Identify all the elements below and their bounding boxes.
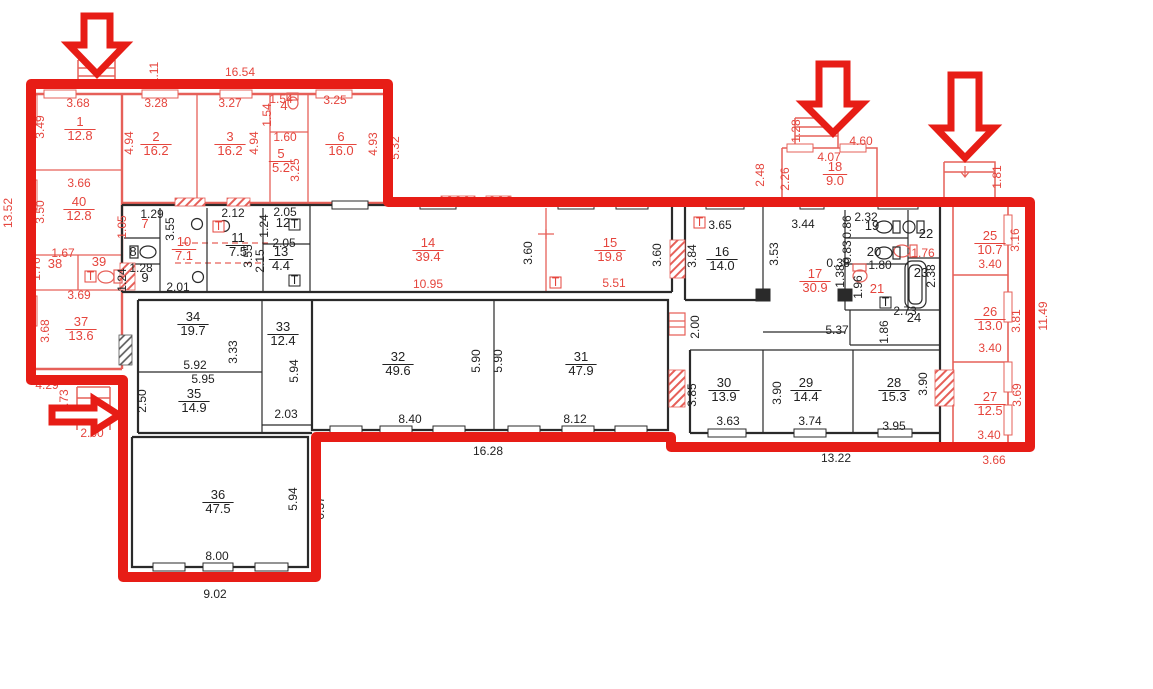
room-area: 10.7 <box>977 242 1002 257</box>
dimension-label: 13.22 <box>821 451 851 465</box>
dimension-label: 1.86 <box>877 320 891 344</box>
room-number: 7 <box>141 216 148 231</box>
dimension-label: 3.40 <box>978 341 1002 355</box>
room-number: 25 <box>983 228 997 243</box>
dimension-label: 16.28 <box>473 444 503 458</box>
room-number: 24 <box>907 310 921 325</box>
dimension-label: 3.25 <box>323 93 347 107</box>
room-number: 17 <box>808 266 822 281</box>
dimension-label: 5.92 <box>183 358 207 372</box>
room-number: 36 <box>211 487 225 502</box>
room-area: 12.8 <box>67 128 92 143</box>
room-area: 47.5 <box>205 501 230 516</box>
room-number: 35 <box>187 386 201 401</box>
room-area: 13.0 <box>977 318 1002 333</box>
room-area: 16.2 <box>217 143 242 158</box>
room-number: 1 <box>76 114 83 129</box>
dimension-label: 10.95 <box>413 277 443 291</box>
dimension-label: 3.74 <box>798 414 822 428</box>
room-area: 5.2 <box>272 160 290 175</box>
dimension-label: 3.68 <box>38 319 52 343</box>
dimension-label: 13.52 <box>1 198 15 228</box>
room-number: 33 <box>276 319 290 334</box>
room-area: 15.3 <box>881 389 906 404</box>
dimension-label: 3.66 <box>982 453 1006 467</box>
room-number: 21 <box>870 281 884 296</box>
room-number: 9 <box>141 270 148 285</box>
dimension-label: 5.94 <box>287 359 301 383</box>
dimension-label: 8.40 <box>398 412 422 426</box>
dimension-label: 3.33 <box>226 340 240 364</box>
room-area: 16.0 <box>328 143 353 158</box>
dimension-label: 8.00 <box>205 549 229 563</box>
dimension-label: 5.37 <box>825 323 849 337</box>
dimension-label: 5.95 <box>191 372 215 386</box>
dimension-label: 1.80 <box>868 258 892 272</box>
room-area: 14.9 <box>181 400 206 415</box>
room-area: 39.4 <box>415 249 440 264</box>
dimension-label: 5.51 <box>602 276 626 290</box>
room-number: 5 <box>277 146 284 161</box>
dimension-label: 3.53 <box>767 242 781 266</box>
room-number: 32 <box>391 349 405 364</box>
dimension-label: 2.03 <box>274 407 298 421</box>
utility-t-glyph: T <box>552 275 560 289</box>
room-number: 19 <box>865 218 879 233</box>
room-number: 6 <box>337 129 344 144</box>
dimension-label: 3.90 <box>916 372 930 396</box>
room-area: 16.2 <box>143 143 168 158</box>
dimension-label: 1.81 <box>990 165 1004 189</box>
room-number: 4 <box>280 98 287 113</box>
room-number: 38 <box>48 256 62 271</box>
room-area: 14.4 <box>793 389 818 404</box>
room-number: 20 <box>867 244 881 259</box>
room-number: 14 <box>421 235 435 250</box>
room-number: 13 <box>274 244 288 259</box>
dimension-label: 5.94 <box>286 487 300 511</box>
room-number: 16 <box>715 244 729 259</box>
room-number: 29 <box>799 375 813 390</box>
dimension-label: 2.50 <box>135 389 149 413</box>
room-number: 12 <box>276 215 290 230</box>
floor-plan-drawing: 16.541.1113.523.683.493.284.943.274.941.… <box>0 0 1153 689</box>
dimension-label: 3.60 <box>650 243 664 267</box>
dimension-label: 1.05 <box>115 215 129 239</box>
dimension-label: 1.28 <box>789 119 803 143</box>
utility-t-glyph: T <box>291 273 299 287</box>
dimension-label: 2.01 <box>166 280 190 294</box>
room-number: 23 <box>914 265 928 280</box>
dimension-label: 1.24 <box>115 268 129 292</box>
dimension-label: 1.60 <box>273 130 297 144</box>
room-number: 8 <box>129 244 136 259</box>
utility-t-glyph: T <box>87 269 95 283</box>
room-area: 30.9 <box>802 280 827 295</box>
dimension-label: 16.54 <box>225 65 255 79</box>
room-number: 27 <box>983 389 997 404</box>
room-area: 7.1 <box>175 248 193 263</box>
dimension-label: 3.66 <box>67 176 91 190</box>
dimension-label: 11.49 <box>1036 301 1050 330</box>
room-area: 9.0 <box>826 173 844 188</box>
room-area: 49.6 <box>385 363 410 378</box>
dimension-label: 9.02 <box>203 587 227 601</box>
dimension-label: 3.27 <box>218 96 242 110</box>
wall-post <box>838 289 852 301</box>
room-number: 22 <box>919 226 933 241</box>
room-number: 10 <box>177 234 191 249</box>
dimension-label: 3.60 <box>521 241 535 265</box>
dimension-label: 1.38 <box>833 264 847 288</box>
room-number: 26 <box>983 304 997 319</box>
room-number: 3 <box>226 129 233 144</box>
room-area: 47.9 <box>568 363 593 378</box>
room-number: 11 <box>231 230 245 245</box>
dimension-label: 4.60 <box>849 134 873 148</box>
dimension-label: 8.12 <box>563 412 587 426</box>
dimension-label: 3.63 <box>716 414 740 428</box>
room-area: 12.8 <box>66 208 91 223</box>
room-number: 15 <box>603 235 617 250</box>
utility-t-glyph: T <box>291 217 299 231</box>
room-area: 12.4 <box>270 333 295 348</box>
utility-t-glyph: T <box>882 295 890 309</box>
dimension-label: 4.94 <box>247 131 261 155</box>
dimension-label: 3.40 <box>978 257 1002 271</box>
dimension-label: 3.84 <box>685 244 699 268</box>
dimension-label: 1.76 <box>911 246 935 260</box>
dimension-label: 1.54 <box>260 103 274 127</box>
room-area: 12.5 <box>977 403 1002 418</box>
room-area: 19.7 <box>180 323 205 338</box>
room-number: 28 <box>887 375 901 390</box>
room-area: 14.0 <box>709 258 734 273</box>
dimension-label: 3.69 <box>1010 383 1024 407</box>
room-area: 19.8 <box>597 249 622 264</box>
floor-plan-page: 16.541.1113.523.683.493.284.943.274.941.… <box>0 0 1153 689</box>
dimension-label: 3.68 <box>66 96 90 110</box>
room-number: 18 <box>828 159 842 174</box>
dimension-label: 4.93 <box>366 132 380 156</box>
room-number: 2 <box>152 129 159 144</box>
dimension-label: 2.00 <box>688 315 702 339</box>
dimension-label: 3.90 <box>770 381 784 405</box>
room-area: 13.6 <box>68 328 93 343</box>
dimension-label: 2.26 <box>778 167 792 191</box>
dimension-label: 2.12 <box>221 206 245 220</box>
dimension-label: 3.16 <box>1008 228 1022 252</box>
dimension-label: 5.90 <box>469 349 483 373</box>
room-number: 31 <box>574 349 588 364</box>
dimension-label: 4.94 <box>122 131 136 155</box>
room-number: 40 <box>72 194 86 209</box>
dimension-label: 3.40 <box>977 428 1001 442</box>
room-area: 7.5 <box>229 244 247 259</box>
dimension-label: 3.28 <box>144 96 168 110</box>
dimension-label: 3.44 <box>791 217 815 231</box>
dimension-label: 1.24 <box>257 214 271 238</box>
room-number: 39 <box>92 254 106 269</box>
dimension-label: 3.95 <box>882 419 906 433</box>
utility-t-glyph: T <box>696 215 704 229</box>
dimension-label: 2.15 <box>253 249 267 273</box>
dimension-label: 3.55 <box>163 217 177 241</box>
dimension-label: 3.65 <box>708 218 732 232</box>
dimension-label: 3.81 <box>1009 309 1023 333</box>
room-number: 37 <box>74 314 88 329</box>
dimension-label: 3.85 <box>685 383 699 407</box>
room-area: 13.9 <box>711 389 736 404</box>
utility-t-glyph: T <box>215 219 223 233</box>
dimension-label: 0.86 <box>840 215 854 239</box>
dimension-label: 2.48 <box>753 163 767 187</box>
room-number: 30 <box>717 375 731 390</box>
dimension-label: 1.96 <box>851 275 865 299</box>
dimension-label: 3.69 <box>67 288 91 302</box>
wall-post <box>756 289 770 301</box>
room-area: 4.4 <box>272 258 290 273</box>
room-number: 34 <box>186 309 200 324</box>
dimension-label: 5.90 <box>491 349 505 373</box>
